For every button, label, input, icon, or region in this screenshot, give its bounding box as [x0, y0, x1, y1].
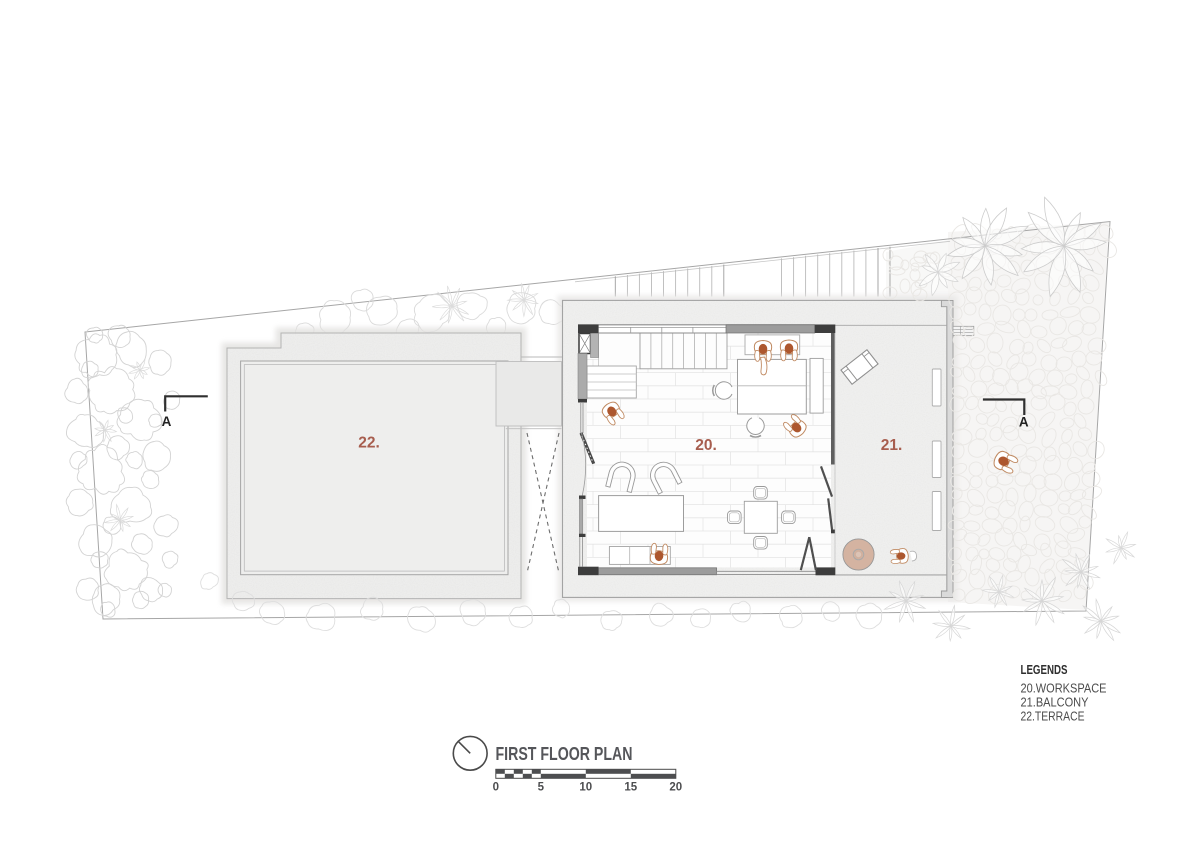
svg-text:20: 20	[669, 782, 682, 794]
svg-text:20.: 20.	[695, 437, 717, 454]
svg-text:21.BALCONY: 21.BALCONY	[1021, 695, 1089, 710]
svg-text:FIRST FLOOR PLAN: FIRST FLOOR PLAN	[496, 743, 633, 764]
svg-text:15: 15	[624, 782, 637, 794]
svg-text:A: A	[1019, 415, 1029, 430]
svg-text:0: 0	[493, 782, 499, 794]
svg-text:22.TERRACE: 22.TERRACE	[1021, 709, 1085, 724]
svg-text:LEGENDS: LEGENDS	[1021, 662, 1068, 677]
svg-text:20.WORKSPACE: 20.WORKSPACE	[1021, 681, 1107, 696]
svg-text:A: A	[162, 414, 172, 429]
svg-text:10: 10	[579, 782, 592, 794]
svg-text:21.: 21.	[881, 437, 903, 454]
svg-text:22.: 22.	[358, 435, 380, 452]
svg-text:5: 5	[538, 782, 545, 794]
